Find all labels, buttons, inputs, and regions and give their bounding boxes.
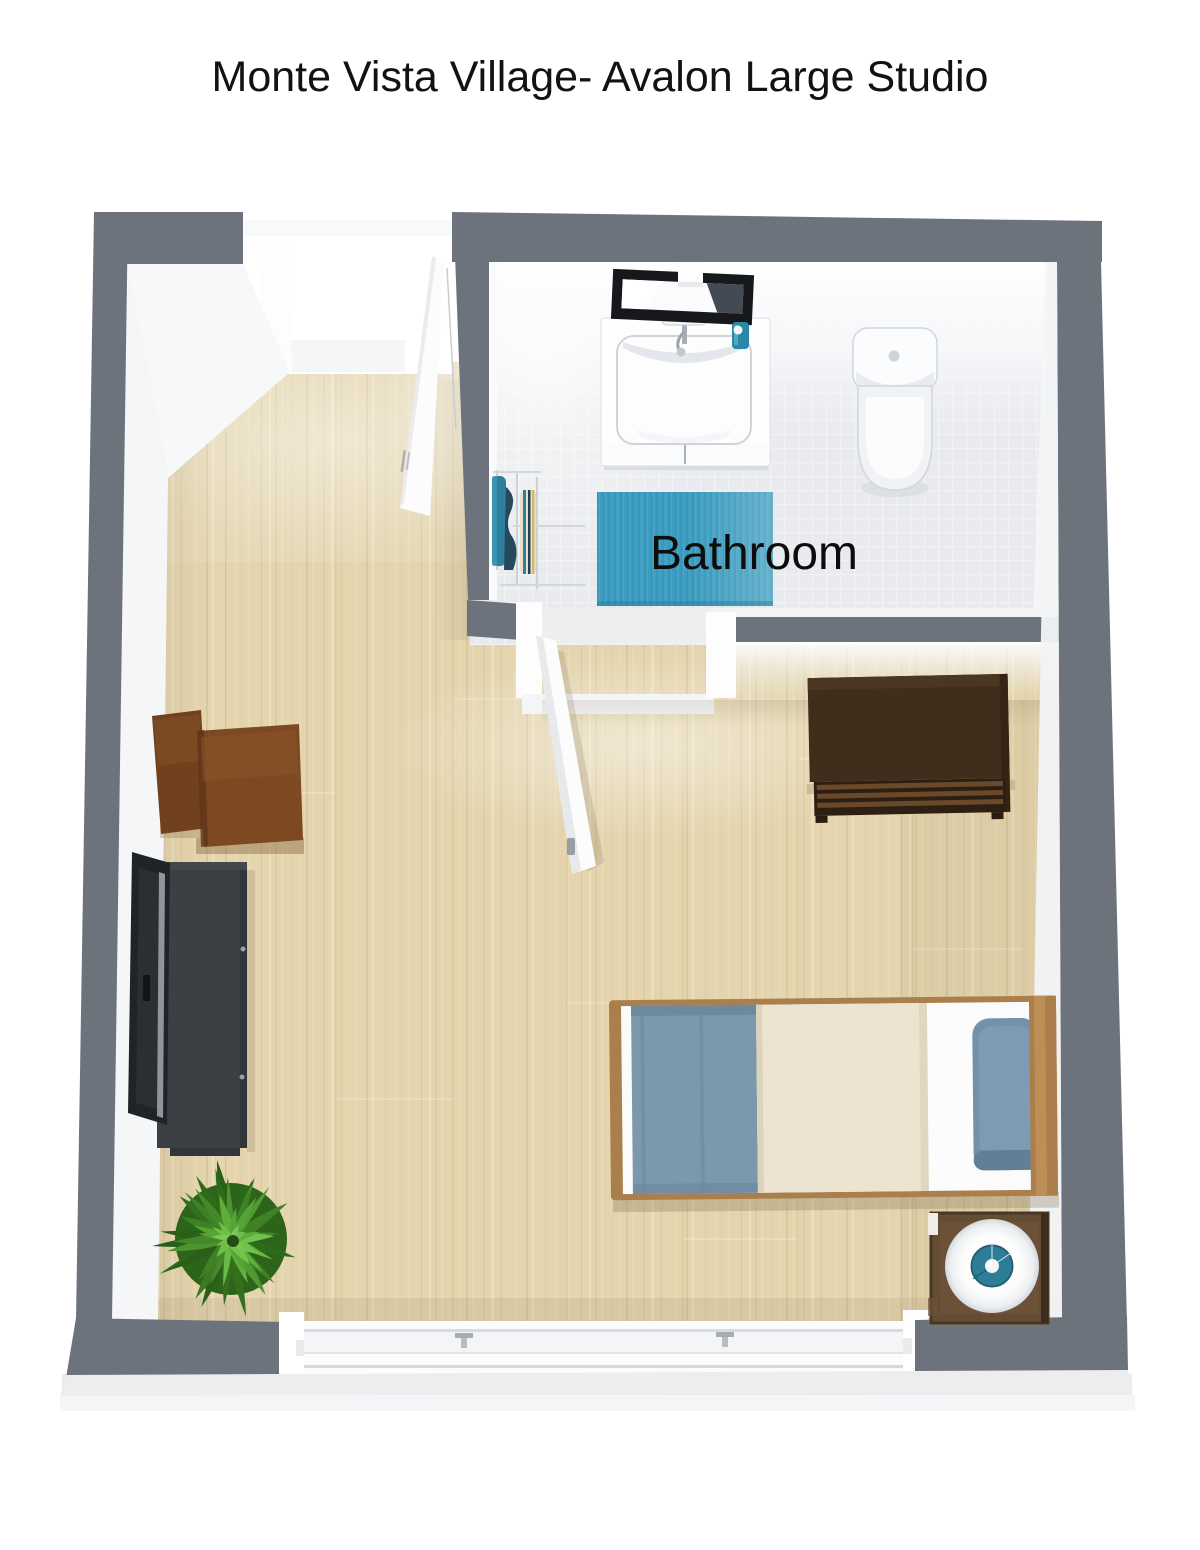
svg-text:Monte Vista Village- Avalon La: Monte Vista Village- Avalon Large Studio — [212, 53, 989, 101]
svg-text:Bathroom: Bathroom — [650, 527, 858, 580]
